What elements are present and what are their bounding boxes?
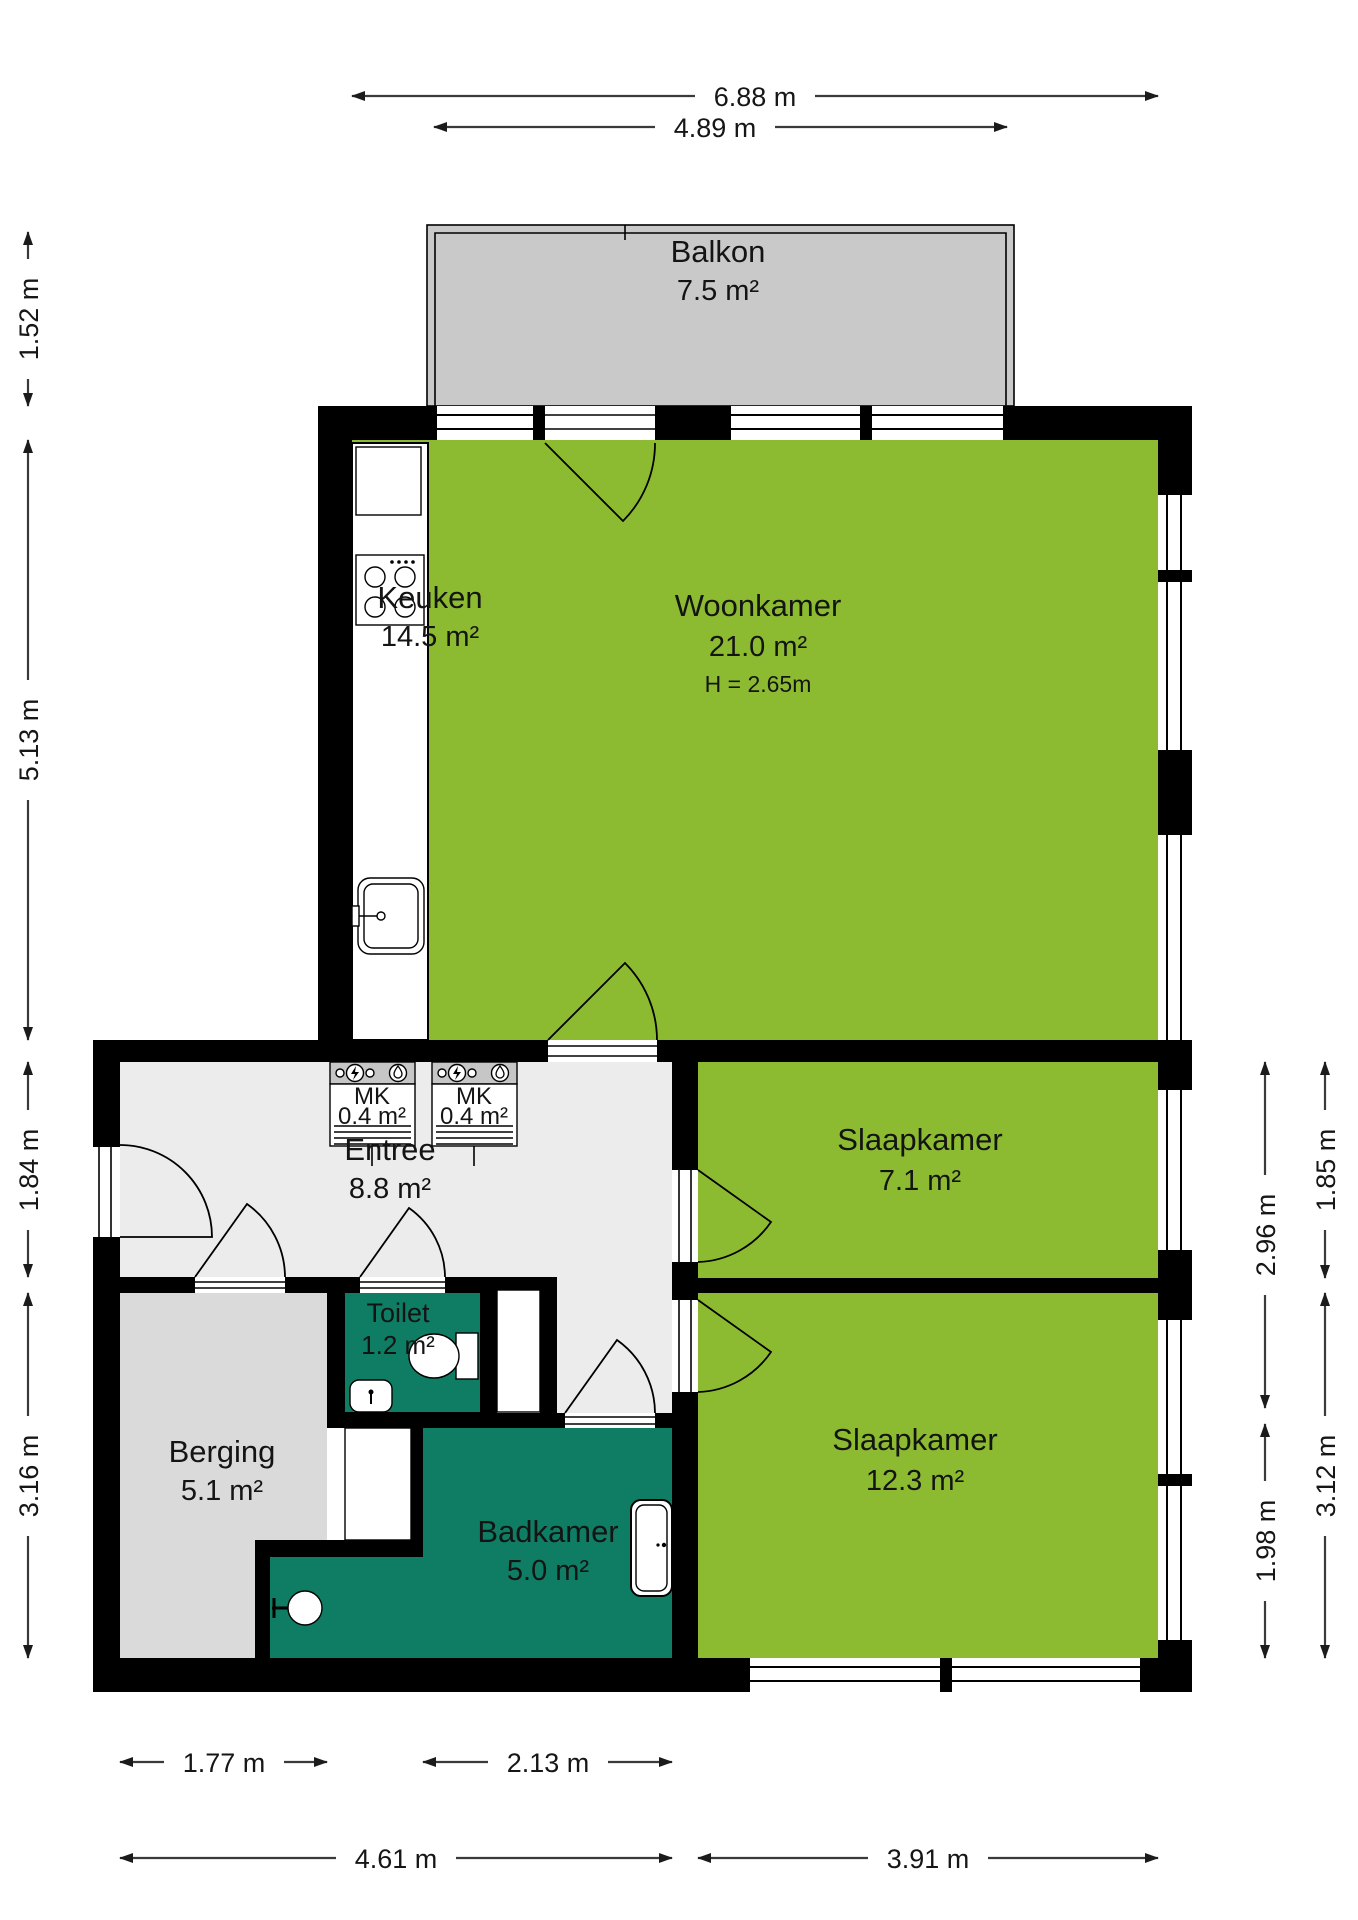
wall-step-exterior	[93, 1040, 318, 1062]
floor-plan: Balkon 7.5 m²	[0, 0, 1358, 1920]
wall-berging-alcove-side	[255, 1540, 270, 1658]
wall-shaft-corridor	[540, 1277, 557, 1428]
dim-left-middle: 1.84 m	[10, 1062, 46, 1277]
dim-right-outer-lower: 3.12 m	[1307, 1293, 1343, 1658]
door-opening	[545, 406, 655, 440]
balkon-label: Balkon	[671, 234, 766, 269]
keuken-area: 14.5 m²	[381, 621, 480, 653]
washbasin	[288, 1591, 322, 1625]
shaft-next-to-badkamer	[345, 1428, 411, 1540]
window-woonkamer-right-upper	[1158, 495, 1192, 750]
dim-right-inner-lower: 1.98 m	[1247, 1424, 1283, 1658]
door-opening	[548, 1040, 657, 1062]
meter-dot-icon	[336, 1069, 344, 1077]
dim-bottom-left-total: 4.61 m	[120, 1840, 672, 1876]
woonkamer-area: 21.0 m²	[709, 631, 808, 663]
door-post	[533, 406, 545, 440]
wall-left-upper	[318, 406, 352, 1062]
window-glass	[1158, 1090, 1192, 1250]
kitchen-sink	[352, 878, 424, 954]
dim-value: 4.61 m	[355, 1844, 438, 1874]
wall-entree-berging-b	[285, 1277, 360, 1293]
bathtub-drain-icon	[656, 1543, 659, 1546]
dim-value: 1.85 m	[1311, 1129, 1341, 1212]
dim-bottom-berging: 1.77 m	[120, 1744, 327, 1780]
dim-value: 3.12 m	[1311, 1435, 1341, 1518]
door-opening	[672, 1170, 698, 1262]
meter-dot-icon	[468, 1069, 476, 1077]
mk-area: 0.4 m²	[440, 1103, 508, 1130]
badkamer-area: 5.0 m²	[507, 1555, 590, 1587]
meter-dot-icon	[366, 1069, 374, 1077]
dim-left-lower: 3.16 m	[10, 1293, 46, 1658]
balkon-area: 7.5 m²	[677, 275, 760, 307]
window-glass	[437, 406, 545, 440]
keuken-label: Keuken	[377, 580, 482, 615]
dim-value: 5.13 m	[14, 699, 44, 782]
wall-toilet-shaft	[480, 1290, 497, 1412]
dim-left-upper: 5.13 m	[10, 440, 46, 1040]
dim-value: 1.84 m	[14, 1129, 44, 1212]
door-opening	[93, 1147, 120, 1237]
window-mullion	[860, 406, 872, 440]
stove-knob	[404, 560, 408, 564]
kitchen-fixtures	[352, 443, 428, 1040]
window-glass	[1158, 835, 1192, 1040]
balcony: Balkon 7.5 m²	[427, 225, 1014, 406]
basin-drain-icon	[369, 1390, 374, 1395]
dim-value: 1.52 m	[14, 278, 44, 361]
woonkamer-ceiling-note: H = 2.65m	[705, 671, 812, 697]
kitchen-cabinet	[356, 447, 421, 515]
dim-right-outer-upper: 1.85 m	[1307, 1062, 1343, 1278]
dim-bottom-slaapkamer: 3.91 m	[698, 1840, 1158, 1876]
window-mullion	[940, 1658, 952, 1692]
toilet-area: 1.2 m²	[361, 1330, 435, 1360]
toilet-label: Toilet	[366, 1298, 430, 1328]
dim-value: 1.98 m	[1251, 1500, 1281, 1583]
door-opening	[195, 1277, 285, 1293]
dim-value: 1.77 m	[183, 1748, 266, 1778]
dim-bottom-badkamer: 2.13 m	[423, 1744, 672, 1780]
window-mullion	[1158, 570, 1192, 582]
window-woonkamer-top	[731, 406, 1003, 440]
wall-entree-slaapkamers-c	[672, 1392, 698, 1658]
wall-corridor-badkamer-b	[655, 1413, 672, 1428]
slaapkamer-klein-label: Slaapkamer	[837, 1122, 1002, 1157]
keuken-woonkamer-floor	[352, 440, 1158, 1040]
dim-top-balkon: 4.89 m	[434, 109, 1007, 145]
floor-plan-page: Balkon 7.5 m²	[0, 0, 1358, 1920]
faucet-base	[352, 906, 359, 926]
window-mullion	[1158, 1474, 1192, 1486]
wall-entree-berging-a	[120, 1277, 195, 1293]
bathtub-tap-icon	[662, 1543, 666, 1547]
wall-entree-slaapkamers-a	[672, 1062, 698, 1170]
window-slaapkamer-klein	[1158, 1090, 1192, 1250]
entree-label: Entree	[344, 1132, 435, 1167]
dim-top-total: 6.88 m	[352, 78, 1158, 114]
wall-corridor-badkamer-a	[497, 1413, 565, 1428]
stove-knob	[390, 560, 394, 564]
wall-berging-alcove	[255, 1540, 423, 1557]
window-keuken-top	[437, 406, 545, 440]
window-glass	[1158, 495, 1192, 750]
door-opening	[565, 1413, 655, 1428]
berging-area: 5.1 m²	[181, 1475, 264, 1507]
dim-value: 2.96 m	[1251, 1194, 1281, 1277]
stove-knob	[411, 560, 415, 564]
dim-left-balkon: 1.52 m	[10, 232, 46, 406]
bathtub-inner	[636, 1505, 667, 1591]
door-opening	[360, 1277, 445, 1293]
wall-berging-toilet	[327, 1290, 345, 1412]
slaapkamer-klein-area: 7.1 m²	[879, 1165, 962, 1197]
dim-right-inner-upper: 2.96 m	[1247, 1062, 1283, 1408]
wall-toilet-badkamer	[327, 1412, 497, 1428]
window-woonkamer-right-lower	[1158, 835, 1192, 1040]
dim-value: 4.89 m	[674, 113, 757, 143]
faucet-head	[377, 912, 385, 920]
meter-dot-icon	[438, 1069, 446, 1077]
slaapkamer-groot-area: 12.3 m²	[866, 1465, 965, 1497]
wall-shaft2-badkamer	[411, 1428, 423, 1540]
mk-area: 0.4 m²	[338, 1103, 406, 1130]
shaft-next-to-toilet	[497, 1290, 540, 1412]
stove-knob	[397, 560, 401, 564]
badkamer-label: Badkamer	[477, 1514, 618, 1549]
dim-value: 3.16 m	[14, 1435, 44, 1518]
door-opening	[672, 1300, 698, 1392]
wall-keuken-entree	[352, 1040, 548, 1062]
wall-woonkamer-slaapkamer	[657, 1040, 1158, 1062]
dim-value: 3.91 m	[887, 1844, 970, 1874]
window-slaapkamer-groot-bottom	[750, 1658, 1140, 1692]
slaapkamer-groot-label: Slaapkamer	[832, 1422, 997, 1457]
dim-value: 2.13 m	[507, 1748, 590, 1778]
window-slaapkamer-groot-right	[1158, 1320, 1192, 1640]
wall-entree-slaapkamers-b	[672, 1262, 698, 1300]
entree-area: 8.8 m²	[349, 1173, 432, 1205]
berging-label: Berging	[169, 1434, 276, 1469]
dim-value: 6.88 m	[714, 82, 797, 112]
woonkamer-label: Woonkamer	[675, 588, 842, 623]
wall-between-slaapkamers	[698, 1278, 1158, 1293]
